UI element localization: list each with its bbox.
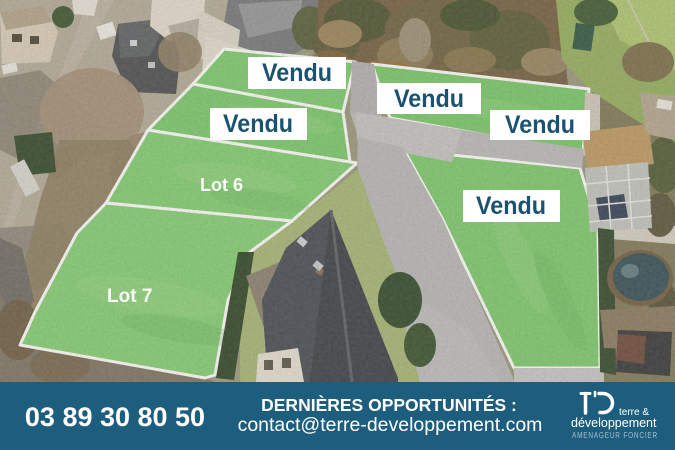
svg-text:développement: développement — [571, 416, 657, 430]
svg-text:Vendu: Vendu — [394, 85, 464, 113]
svg-text:DERNIÈRES OPPORTUNITÉS :: DERNIÈRES OPPORTUNITÉS : — [261, 394, 517, 415]
svg-text:Vendu: Vendu — [505, 111, 575, 139]
svg-text:03 89 30 80 50: 03 89 30 80 50 — [25, 402, 205, 432]
svg-text:Lot 7: Lot 7 — [107, 286, 152, 307]
svg-text:Lot 6: Lot 6 — [200, 175, 243, 195]
svg-text:Vendu: Vendu — [262, 59, 332, 87]
svg-text:AMENAGEUR FONCIER: AMENAGEUR FONCIER — [572, 431, 658, 440]
svg-text:Vendu: Vendu — [223, 110, 293, 138]
svg-text:contact@terre-developpement.co: contact@terre-developpement.com — [238, 414, 543, 436]
svg-text:Vendu: Vendu — [476, 192, 546, 220]
